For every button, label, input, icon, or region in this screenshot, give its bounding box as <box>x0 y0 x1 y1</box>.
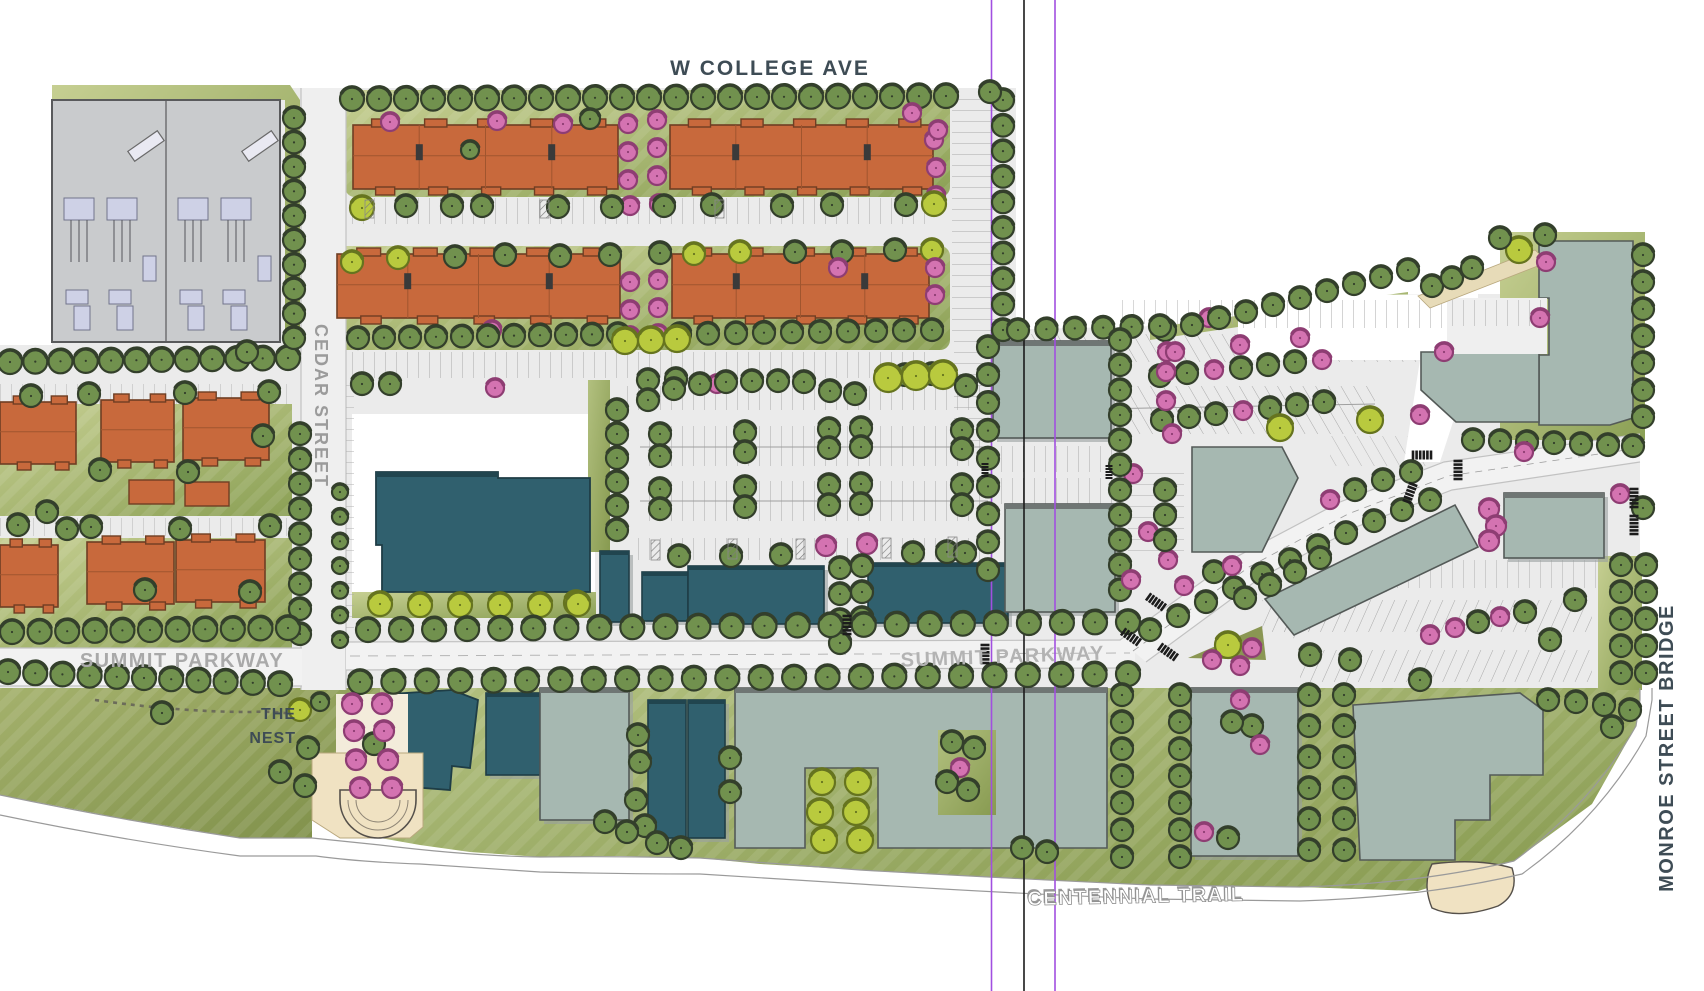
svg-text:THE: THE <box>261 706 296 723</box>
svg-text:SUMMIT PARKWAY: SUMMIT PARKWAY <box>80 650 284 672</box>
svg-text:CEDAR STREET: CEDAR STREET <box>311 324 331 488</box>
svg-text:NEST: NEST <box>249 730 296 747</box>
svg-text:W COLLEGE AVE: W COLLEGE AVE <box>670 57 870 80</box>
svg-text:CENTENNIAL TRAIL: CENTENNIAL TRAIL <box>1027 884 1244 911</box>
svg-text:MONROE STREET BRIDGE: MONROE STREET BRIDGE <box>1656 604 1678 892</box>
